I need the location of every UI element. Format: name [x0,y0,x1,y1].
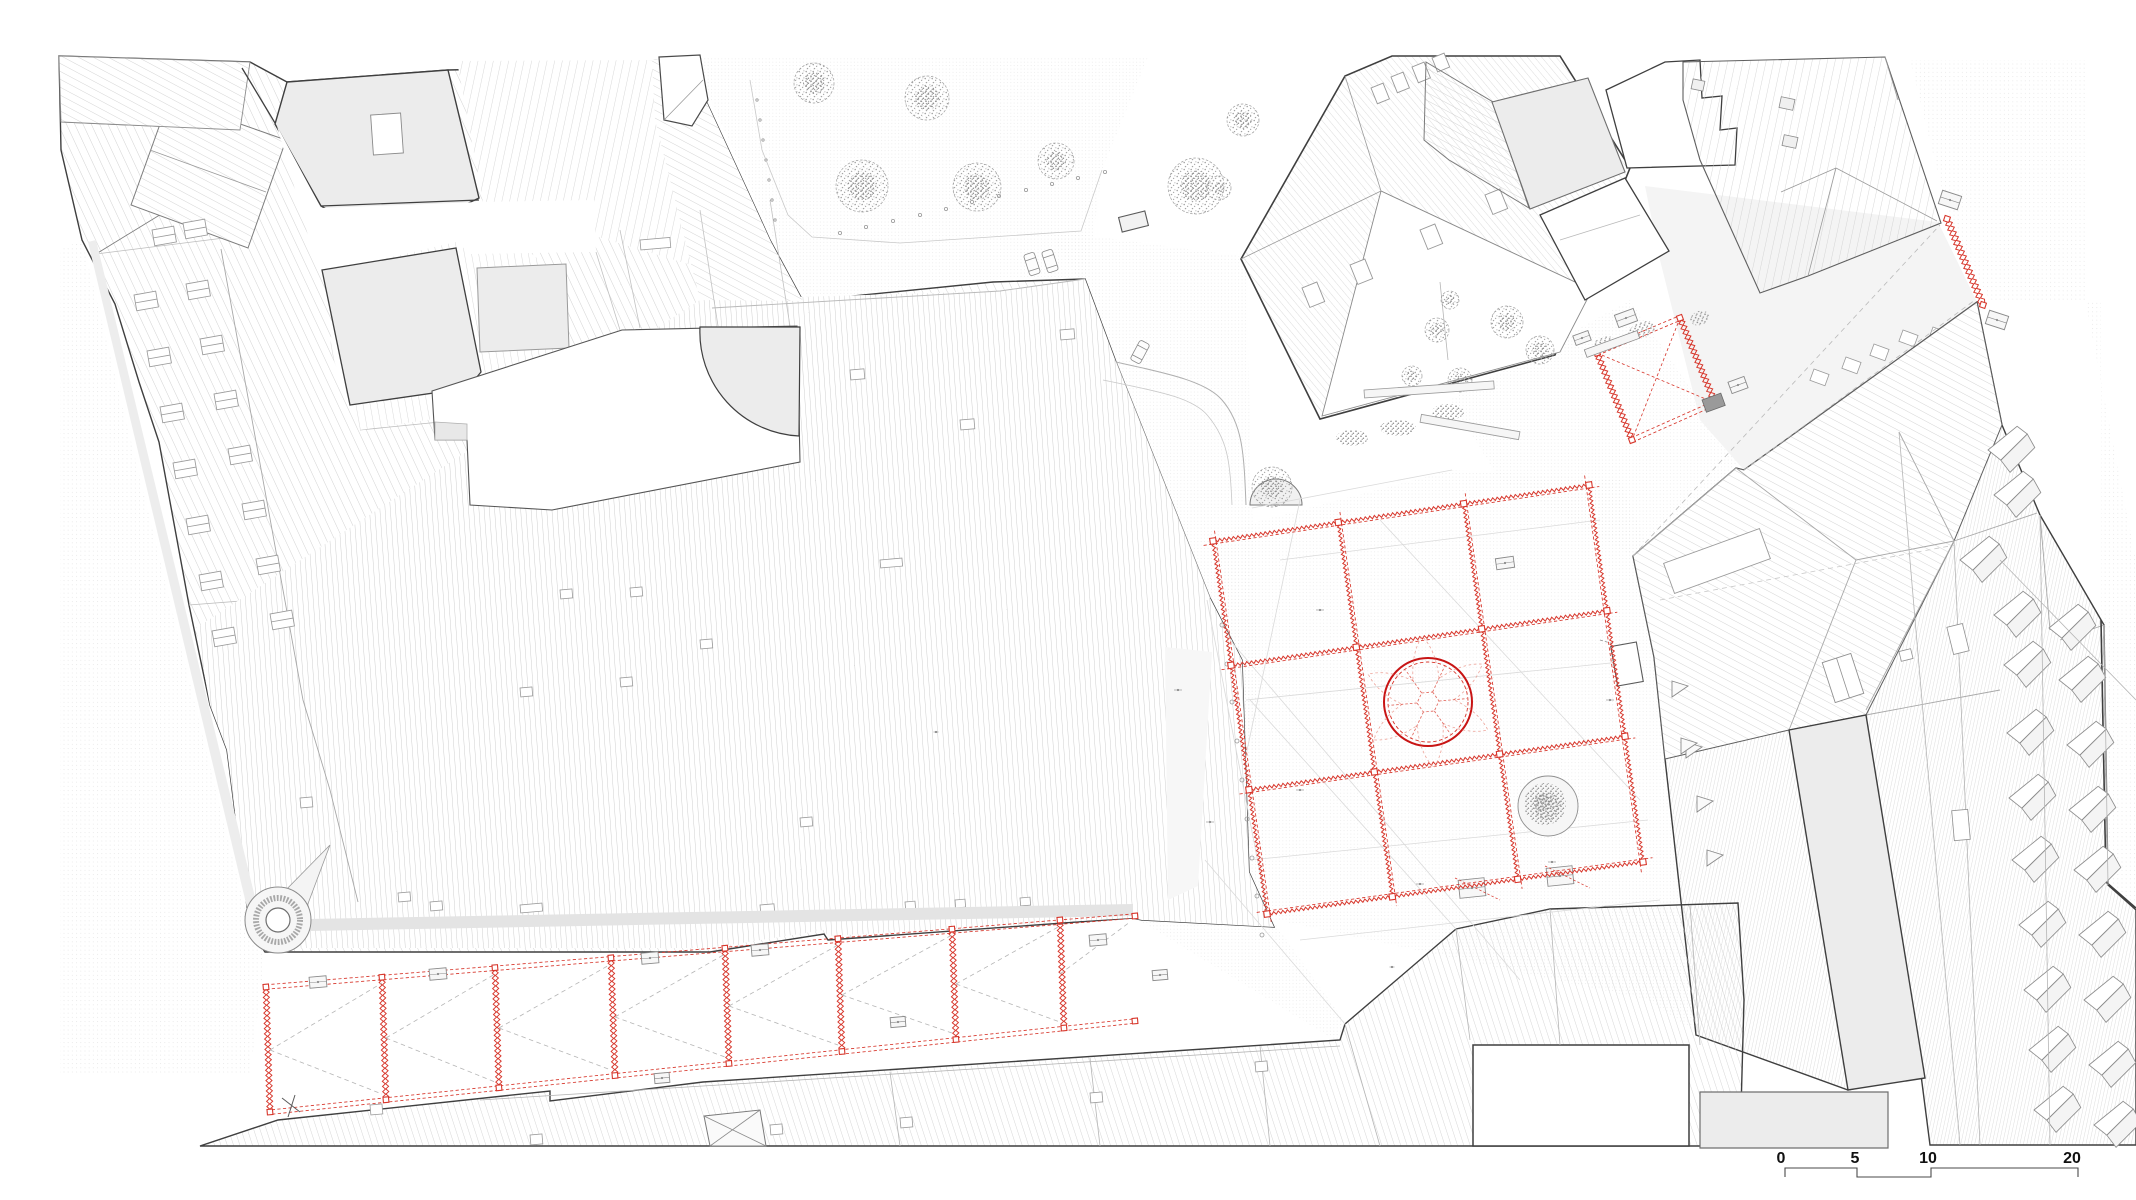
svg-text:20: 20 [2063,1150,2081,1167]
svg-text:10: 10 [1919,1150,1937,1167]
svg-text:5: 5 [1851,1150,1860,1167]
svg-text:0: 0 [1777,1150,1786,1167]
